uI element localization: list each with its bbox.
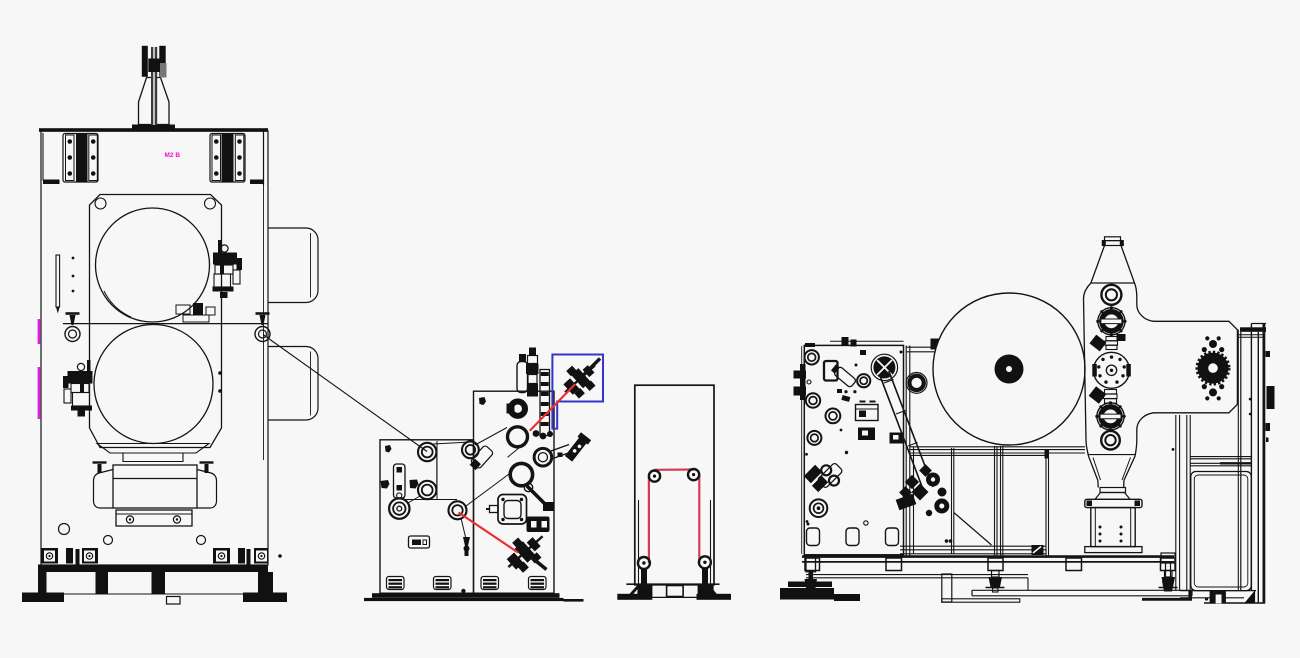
svg-text:M2 B: M2 B — [165, 152, 181, 159]
